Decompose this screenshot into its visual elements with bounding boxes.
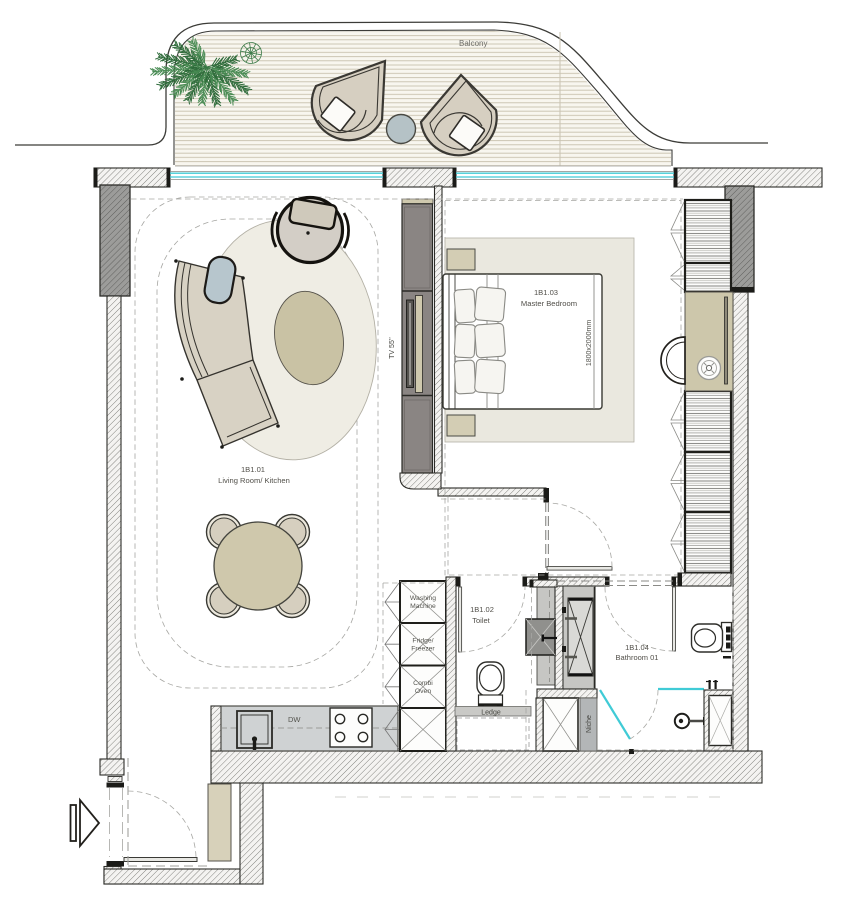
svg-text:1B1.04: 1B1.04 xyxy=(625,643,649,652)
svg-text:Fridge/: Fridge/ xyxy=(412,637,433,644)
svg-text:DW: DW xyxy=(288,715,301,724)
svg-text:Ledge: Ledge xyxy=(481,710,501,717)
svg-text:Machine: Machine xyxy=(410,603,436,610)
svg-text:Washing: Washing xyxy=(410,595,436,602)
svg-text:TV 55’’: TV 55’’ xyxy=(389,337,396,359)
svg-text:Master Bedroom: Master Bedroom xyxy=(521,299,577,308)
svg-text:Living Room/ Kitchen: Living Room/ Kitchen xyxy=(218,476,290,485)
svg-text:Balcony: Balcony xyxy=(459,39,487,48)
svg-text:1B1.02: 1B1.02 xyxy=(470,605,494,614)
svg-text:Niche: Niche xyxy=(586,715,593,733)
svg-text:1B1.03: 1B1.03 xyxy=(534,288,558,297)
svg-text:1B1.01: 1B1.01 xyxy=(241,465,265,474)
svg-text:1800x2000mm: 1800x2000mm xyxy=(586,320,593,366)
svg-text:Oven: Oven xyxy=(415,688,431,695)
svg-text:Toilet: Toilet xyxy=(472,616,490,625)
svg-text:Freezer: Freezer xyxy=(411,645,435,652)
svg-text:Bathroom 01: Bathroom 01 xyxy=(616,653,659,662)
svg-text:Combi: Combi xyxy=(413,680,433,687)
